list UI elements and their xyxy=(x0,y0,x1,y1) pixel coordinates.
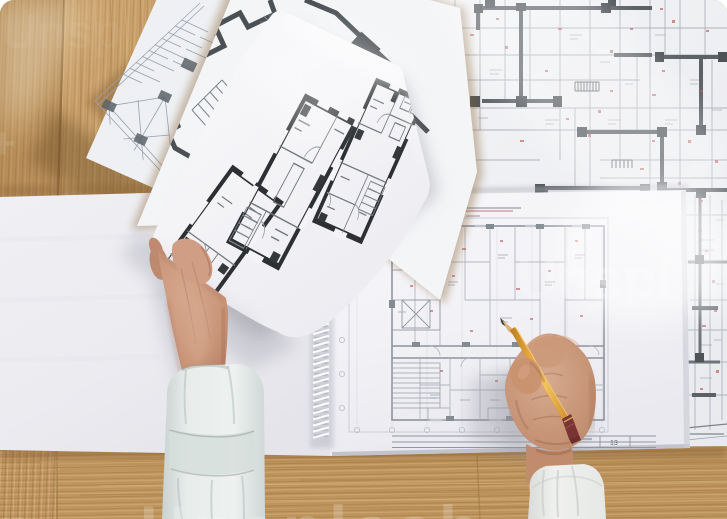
svg-text:Unsp: Unsp xyxy=(2,6,122,59)
svg-text:sp: sp xyxy=(0,499,31,519)
svg-text:Unspl: Unspl xyxy=(517,247,673,310)
svg-text:+: + xyxy=(258,0,284,48)
svg-text:+: + xyxy=(0,119,16,168)
svg-text:13: 13 xyxy=(610,440,618,447)
svg-text:Unsplash: Unsplash xyxy=(140,492,485,519)
